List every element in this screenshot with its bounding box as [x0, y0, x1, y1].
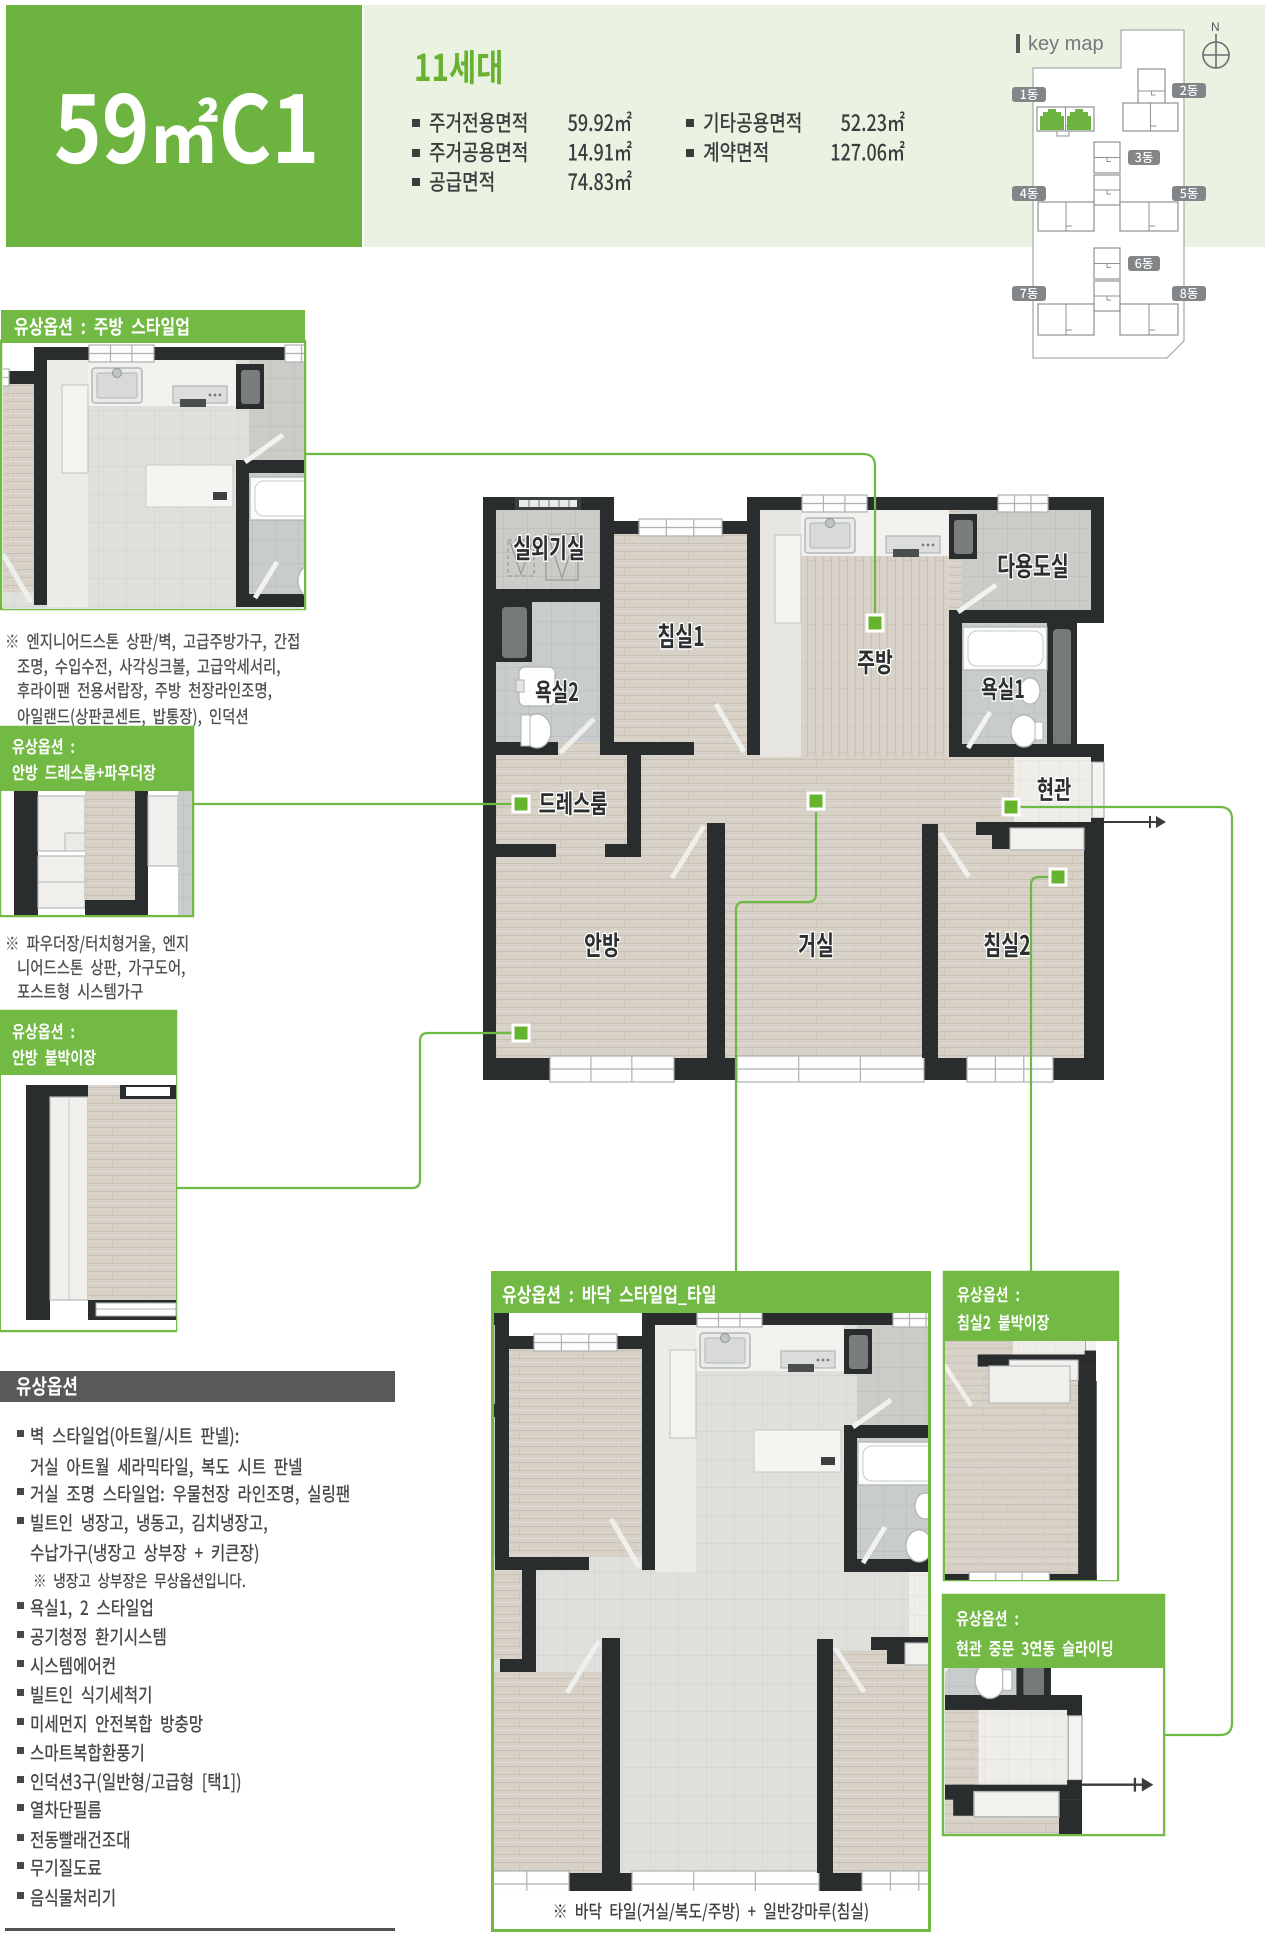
svg-text:N: N [1211, 20, 1220, 34]
svg-text:key map: key map [1028, 33, 1104, 55]
